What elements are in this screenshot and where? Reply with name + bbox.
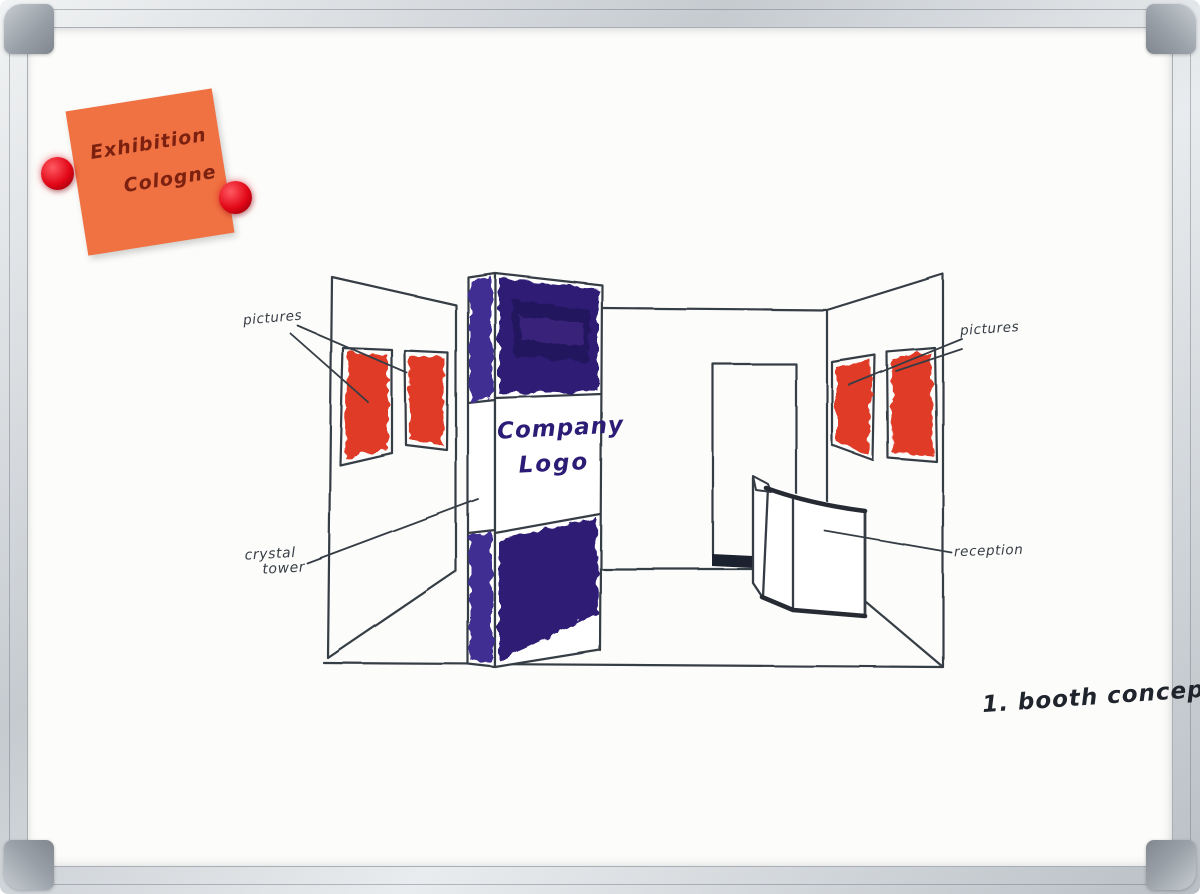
frame-corner-cap-bottom-left — [4, 840, 54, 890]
reception-desk-body — [753, 476, 865, 616]
sticky-note-line2: Cologne — [122, 161, 218, 197]
label-crystal-tower: crystal tower — [244, 545, 305, 578]
door-threshold — [712, 554, 753, 568]
back-wall-top-edge — [602, 308, 827, 310]
label-reception: reception — [954, 542, 1024, 560]
reception-desk — [753, 476, 865, 616]
frame-corner-cap-top-right — [1146, 4, 1196, 54]
frame-corner-cap-top-left — [4, 4, 54, 54]
leader-crystal-tower — [307, 499, 478, 563]
magnet-left — [41, 157, 74, 190]
company-logo-line2: Logo — [504, 448, 603, 479]
frame-corner-cap-bottom-right — [1146, 840, 1196, 890]
picture-red-fill-3 — [836, 360, 871, 455]
company-logo-text: Company Logo — [496, 413, 603, 479]
sticky-note: Exhibition Cologne — [65, 88, 234, 255]
magnet-right — [219, 181, 252, 214]
whiteboard: Exhibition Cologne pictures pictures cry… — [0, 0, 1200, 894]
picture-red-fill-2 — [409, 356, 444, 445]
tower-side-top-fill — [470, 277, 492, 402]
picture-red-fill-4 — [891, 353, 933, 457]
label-crystal-line2: tower — [262, 560, 306, 577]
sticky-note-line1: Exhibition — [89, 124, 209, 164]
picture-red-fill-1 — [345, 353, 388, 459]
left-wall — [328, 277, 456, 658]
tower-side-bottom-fill — [470, 532, 492, 663]
floor-front-edge — [324, 663, 943, 667]
company-logo-line1: Company — [496, 413, 601, 444]
